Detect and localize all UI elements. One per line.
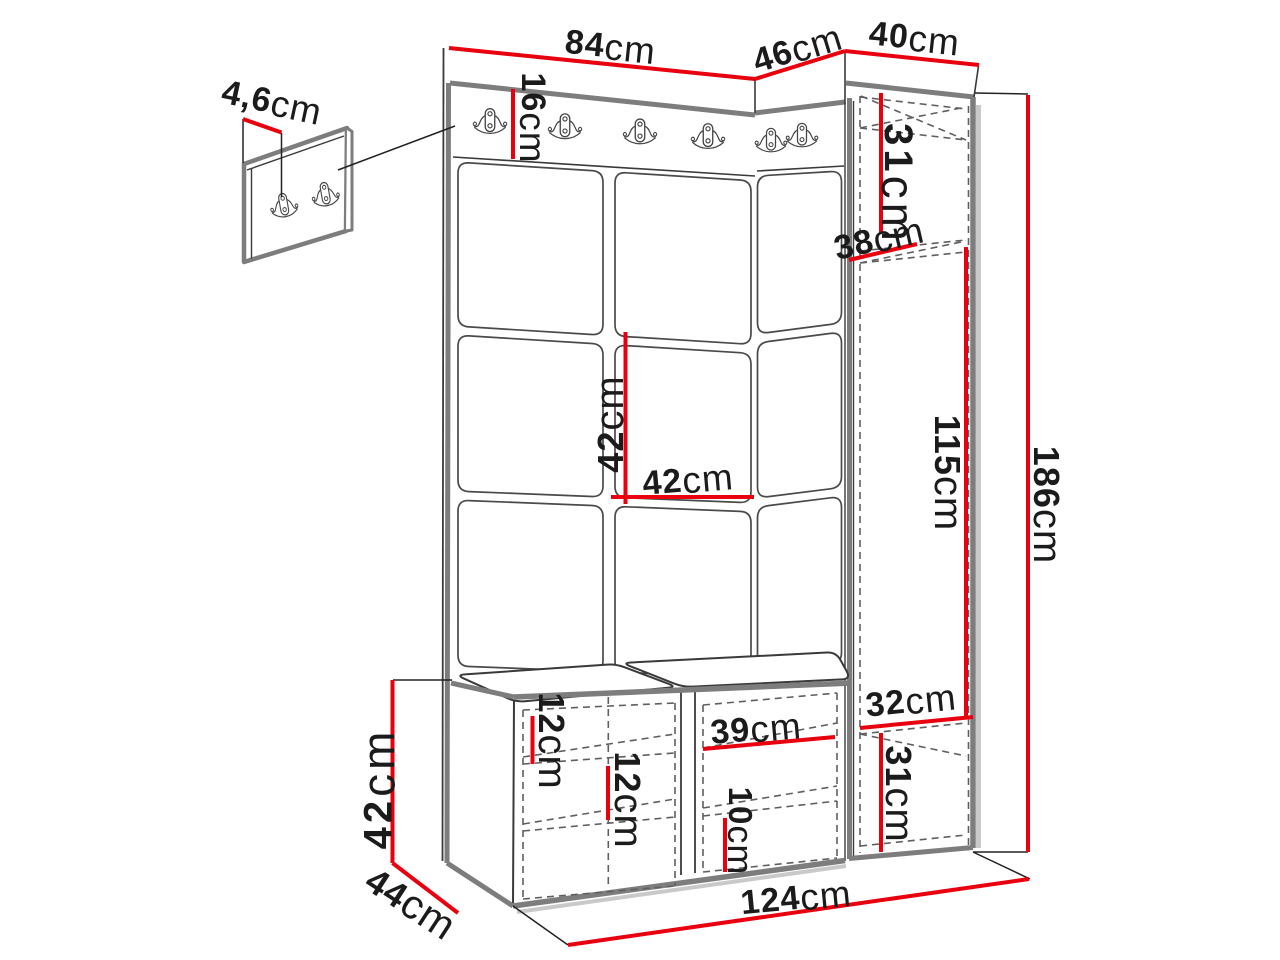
svg-text:186cm: 186cm [1025,446,1069,564]
svg-text:42cm: 42cm [588,375,632,472]
svg-text:12cm: 12cm [530,692,574,789]
svg-text:42cm: 42cm [641,456,735,505]
svg-text:115cm: 115cm [926,415,970,531]
svg-text:42cm: 42cm [353,728,405,850]
svg-text:10cm: 10cm [721,787,762,876]
svg-text:12cm: 12cm [606,751,650,848]
svg-text:39cm: 39cm [709,705,803,754]
svg-text:16cm: 16cm [513,72,554,163]
svg-text:31cm: 31cm [877,745,921,842]
